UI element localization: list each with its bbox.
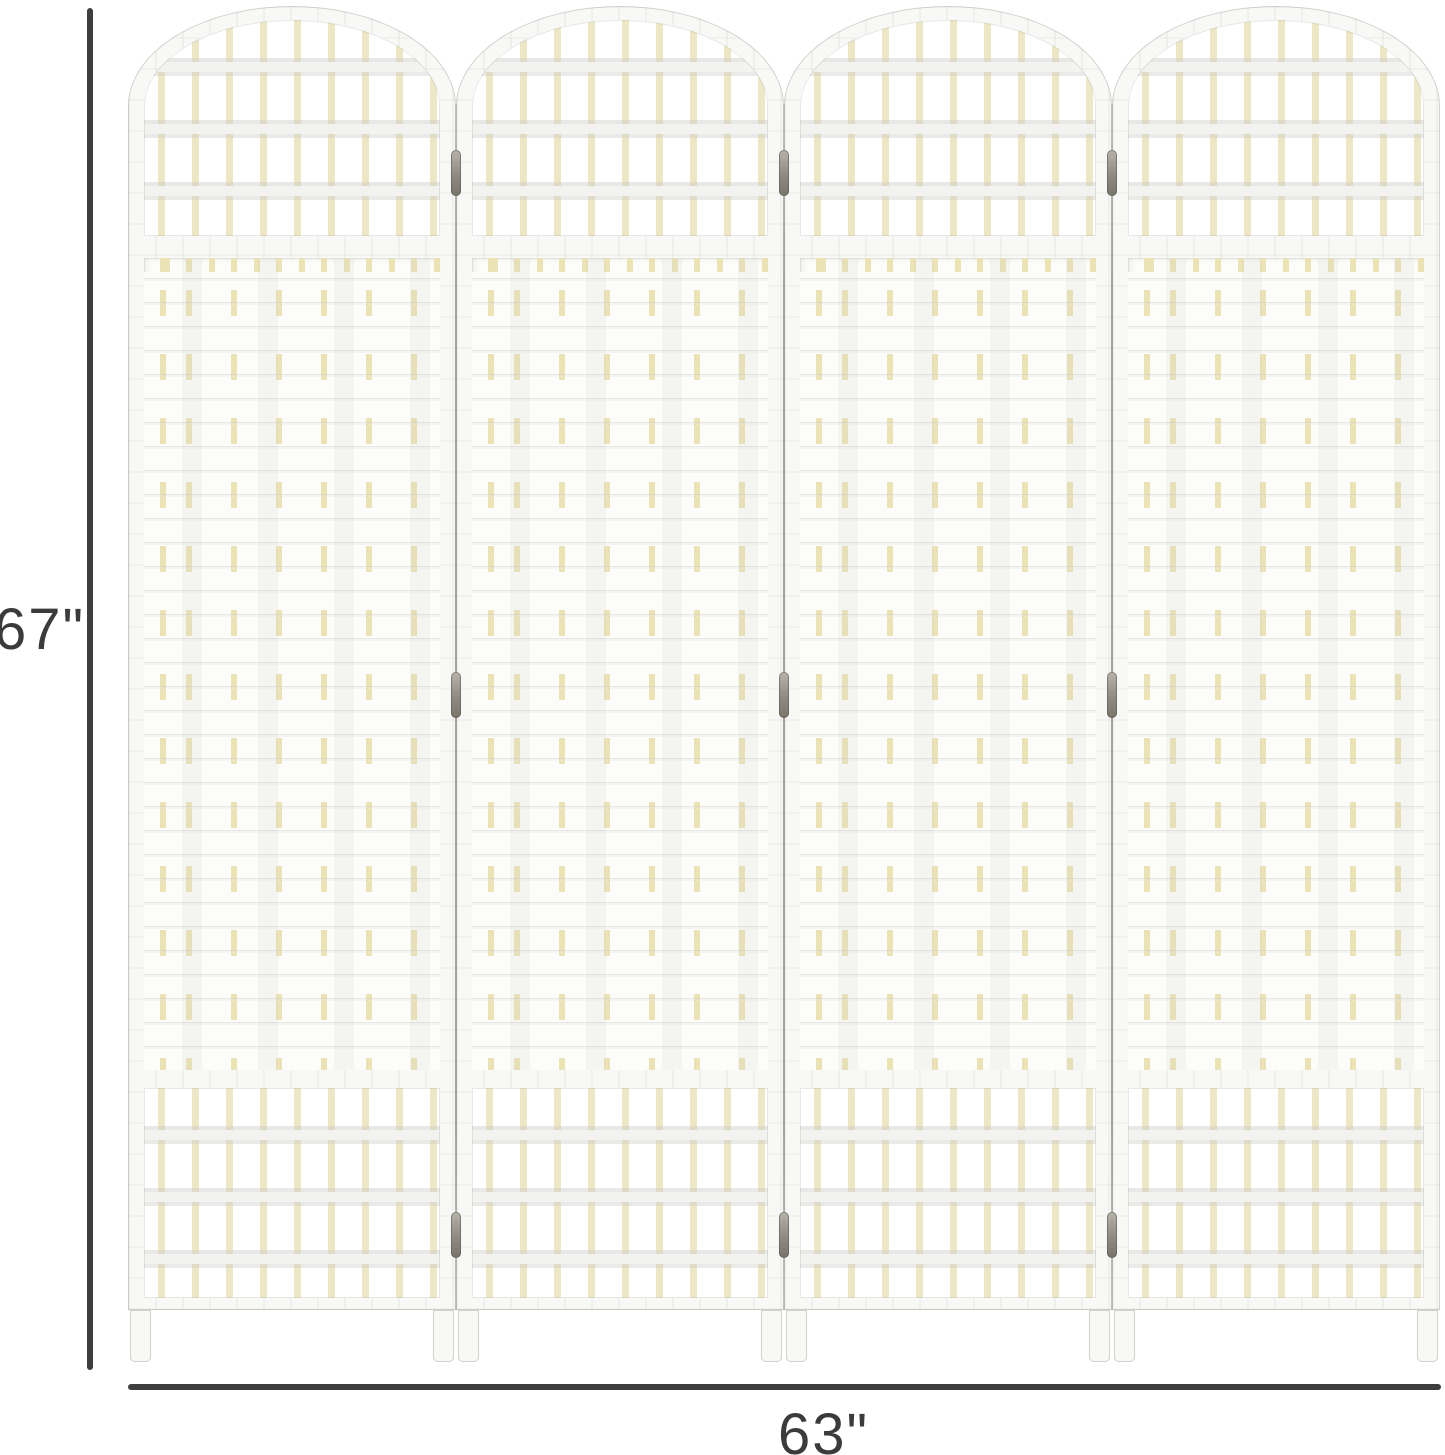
hinge [779,672,789,718]
height-dimension-line [87,8,93,1370]
product-dimension-image: 67" 63" [0,0,1445,1455]
panel-foot-right [1417,1310,1438,1362]
hinge [779,150,789,196]
hinge [451,1212,461,1258]
hinge [451,150,461,196]
weave-texture [1128,258,1424,1070]
weave-texture [144,258,440,1070]
width-dimension-label: 63" [778,1406,869,1455]
hinge [1107,672,1117,718]
weave-texture [472,258,768,1070]
panel-foot-left [458,1310,479,1362]
panel-top-lattice [800,20,1096,236]
panel-weave-body [800,258,1096,1070]
panel-weave-body [1128,258,1424,1070]
divider-panel [128,6,456,1362]
panel-top-lattice [1128,20,1424,236]
height-dimension-label: 67" [0,601,85,659]
divider-panel [456,6,784,1362]
panel-top-lattice [472,20,768,236]
panel-foot-left [1114,1310,1135,1362]
weave-texture [800,258,1096,1070]
hinge [451,672,461,718]
panel-foot-right [433,1310,454,1362]
panel-foot-left [130,1310,151,1362]
divider-panel [784,6,1112,1362]
width-dimension-line [128,1384,1441,1390]
hinge [1107,1212,1117,1258]
hinge [779,1212,789,1258]
panel-foot-right [761,1310,782,1362]
divider-panel [1112,6,1440,1362]
panel-foot-left [786,1310,807,1362]
panel-weave-body [472,258,768,1070]
panel-foot-right [1089,1310,1110,1362]
panel-bottom-lattice [800,1088,1096,1298]
panel-bottom-lattice [472,1088,768,1298]
panel-top-lattice [144,20,440,236]
panel-bottom-lattice [1128,1088,1424,1298]
room-divider [128,6,1440,1362]
panel-bottom-lattice [144,1088,440,1298]
hinge [1107,150,1117,196]
panel-weave-body [144,258,440,1070]
